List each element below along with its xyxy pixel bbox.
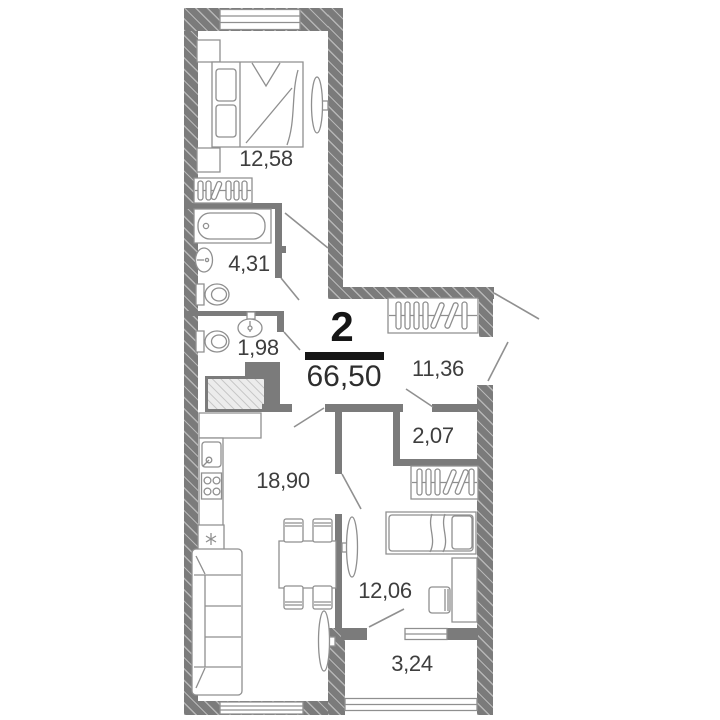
wall-top [184, 8, 341, 31]
bedroom2-wardrobe-icon [411, 466, 478, 499]
desk-icon [452, 558, 477, 622]
door-swing-lines [281, 213, 539, 627]
hallway-wardrobe-icon [388, 298, 478, 333]
wall-closet-left [393, 404, 400, 465]
room-label-balcony: 3,24 [391, 651, 433, 677]
wall-right-upper [479, 299, 493, 337]
wall-corridor-bottom-mid [325, 404, 403, 412]
door-bedroom2 [342, 474, 361, 509]
room-label-wc: 1,98 [237, 335, 279, 361]
single-bed-icon [386, 512, 476, 554]
dining-table-icon [279, 541, 336, 588]
door-stop-tick [282, 246, 286, 253]
wall-closet-bottom [393, 459, 478, 466]
kitchen-counter-icon [199, 413, 261, 553]
wall-kitchen-top-left [262, 404, 292, 412]
bedroom2-tv-icon [342, 517, 358, 577]
total-area: 66,50 [306, 360, 381, 394]
wall-bottom [184, 701, 341, 715]
door-closet [406, 389, 433, 407]
wall-bedroom1-bathroom [184, 203, 281, 209]
wall-hallway-top [328, 287, 494, 299]
room-label-hallway: 11,36 [412, 356, 464, 382]
ventilation-shaft-icon [205, 376, 267, 412]
door-balcony [369, 609, 404, 627]
chair-icon [284, 519, 332, 609]
wall-kitchen-bedroom2-lower [335, 514, 342, 628]
door-wc [284, 332, 300, 350]
balcony-glazing [345, 699, 477, 711]
fridge-icon [198, 525, 224, 553]
wall-wc-right [277, 311, 284, 332]
floor-plan: 12,58 4,31 1,98 11,36 2,07 18,90 12,06 3… [0, 0, 720, 720]
stove-icon [202, 473, 222, 499]
tv-icon [312, 77, 329, 133]
room-label-bedroom-1: 12,58 [239, 146, 293, 172]
double-bed-icon [212, 62, 303, 147]
nightstand-icon [197, 40, 220, 172]
door-bedroom1 [285, 213, 328, 248]
bathtub-icon [194, 209, 271, 243]
kitchen-sink-icon [202, 442, 221, 467]
wall-corridor-bottom-right [432, 404, 478, 412]
door-bathroom [281, 278, 299, 300]
room-label-kitchen-living: 18,90 [256, 468, 310, 494]
washbasin-icon [196, 248, 213, 272]
wc-toilet-icon [196, 331, 229, 352]
wall-balcony-left [328, 628, 345, 715]
window-bedroom2 [405, 629, 447, 640]
sofa-icon [192, 549, 242, 695]
wall-right-lower [477, 385, 493, 715]
door-kitchen [294, 408, 324, 427]
wall-balcony-top-left [341, 628, 367, 640]
wardrobe-icon [194, 178, 252, 203]
wall-bedroom1-right [328, 8, 343, 299]
wall-left [184, 8, 198, 715]
wall-kitchen-bedroom2-upper [335, 412, 342, 474]
toilet-icon [196, 284, 229, 305]
room-label-closet: 2,07 [412, 423, 454, 449]
wall-balcony-top-right [447, 628, 478, 640]
desk-chair-icon [429, 587, 450, 613]
door-entrance-b [488, 342, 508, 381]
door-entrance-a [494, 293, 539, 319]
wall-bathroom-wc [184, 311, 283, 316]
room-label-bedroom-2: 12,06 [358, 578, 412, 604]
wall-bathroom-right [275, 203, 282, 278]
room-label-bathroom: 4,31 [228, 251, 270, 277]
room-count: 2 [330, 303, 353, 351]
fraction-bar [305, 352, 384, 360]
